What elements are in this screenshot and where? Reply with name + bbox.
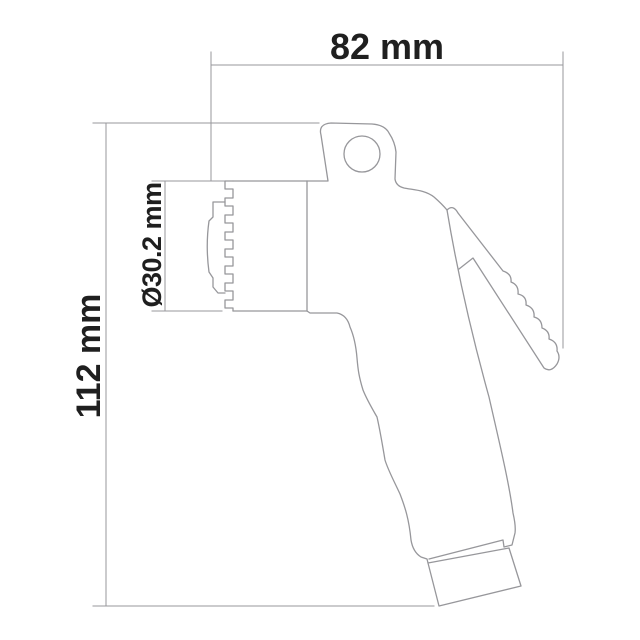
- handle-front-edge: [307, 311, 428, 563]
- spray-gun-outline: [207, 123, 559, 606]
- hose-connector: [428, 548, 521, 606]
- technical-drawing-canvas: 82 mm 112 mm Ø30.2 mm: [0, 0, 640, 640]
- nozzle-front-cap: [207, 202, 225, 293]
- dimension-labels: 82 mm 112 mm Ø30.2 mm: [70, 26, 444, 418]
- hang-hole: [344, 136, 380, 172]
- knurled-ring-teeth: [225, 181, 233, 311]
- dimension-lines: [93, 52, 563, 606]
- width-dimension-label: 82 mm: [330, 26, 444, 67]
- diameter-dimension-label: Ø30.2 mm: [137, 182, 167, 307]
- spray-nozzle-technical-drawing: 82 mm 112 mm Ø30.2 mm: [0, 0, 640, 640]
- handle-back-edge: [429, 210, 515, 559]
- body-top-and-hang-tab: [307, 123, 447, 210]
- trigger: [447, 208, 559, 370]
- height-dimension-label: 112 mm: [70, 294, 108, 419]
